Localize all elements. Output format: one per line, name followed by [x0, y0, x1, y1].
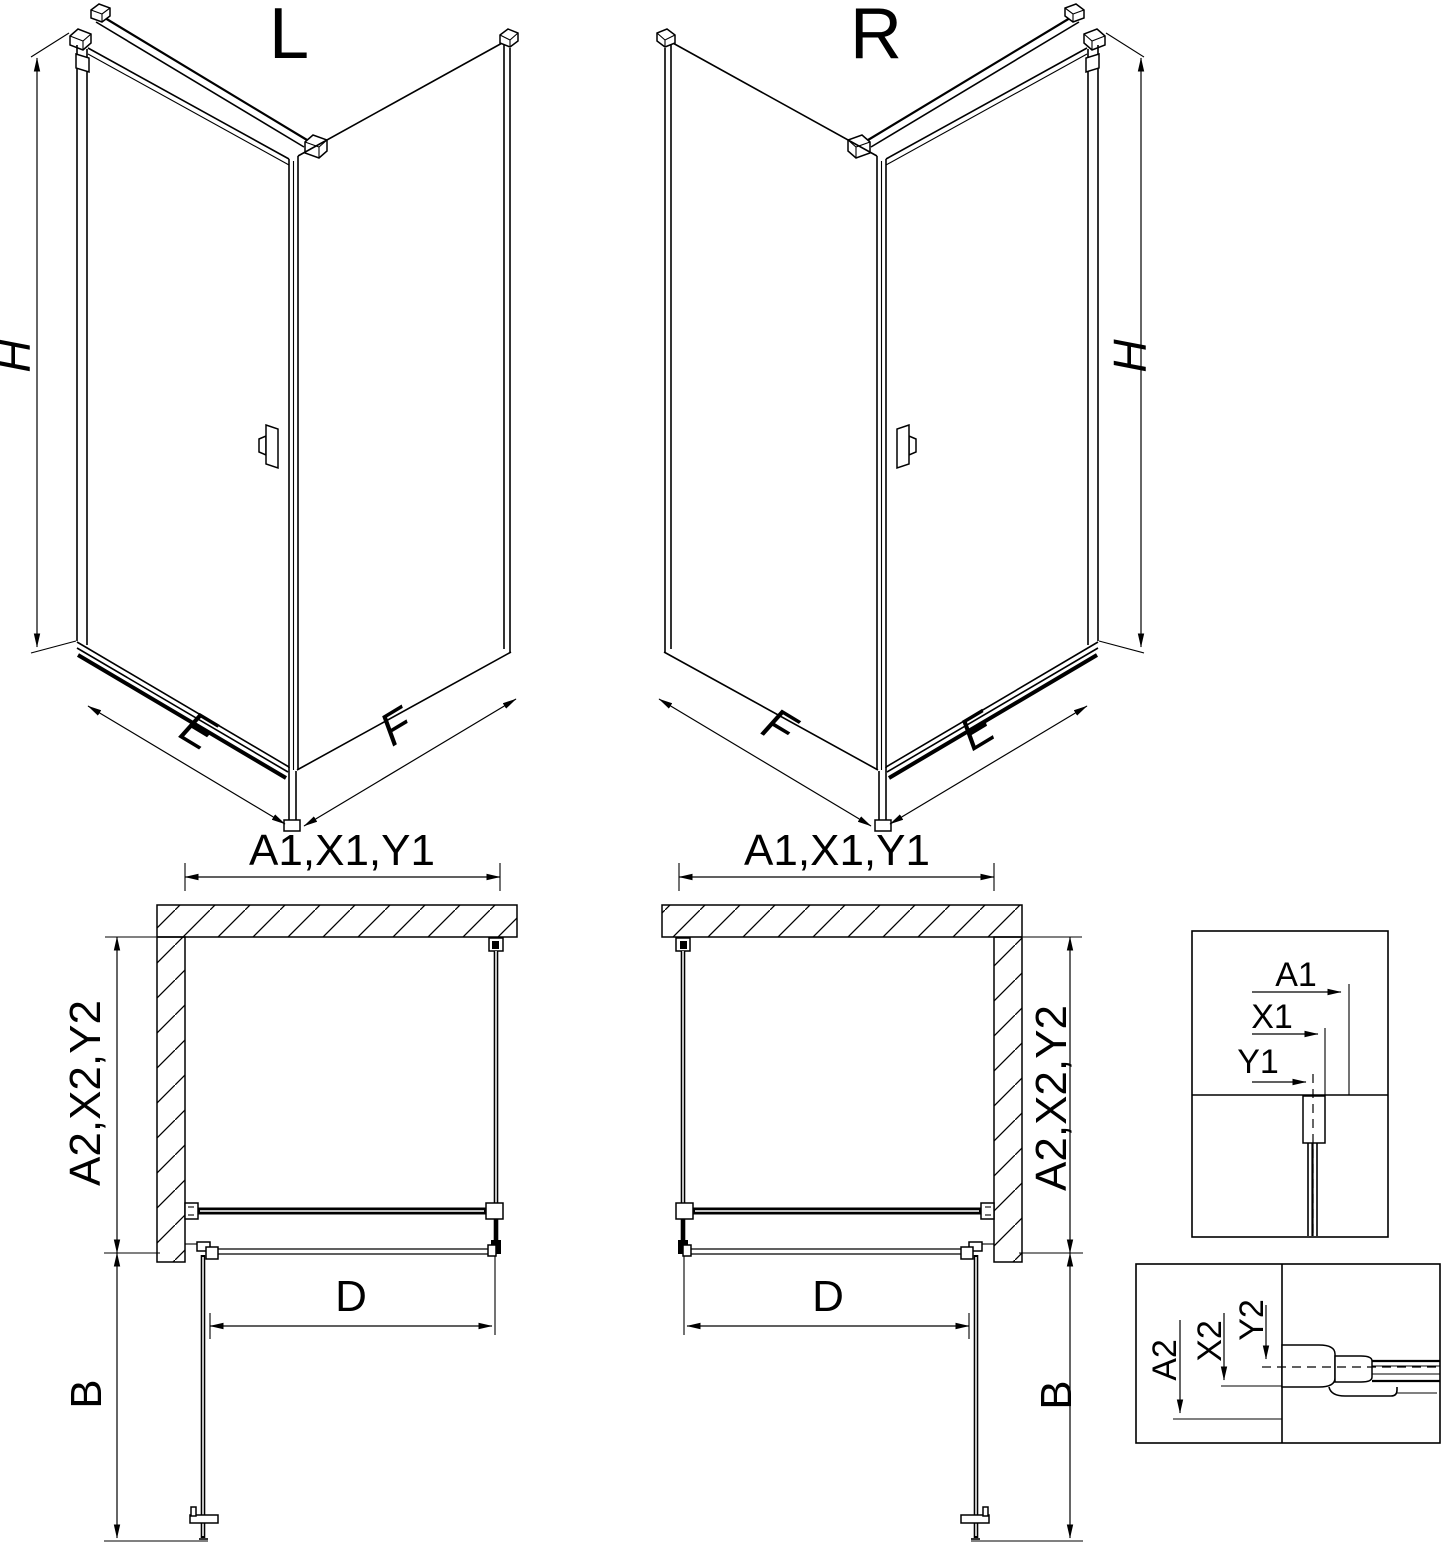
- y2-adjust-label: Y2: [1233, 1299, 1271, 1341]
- opening-dimension-label-left: D: [335, 1272, 367, 1321]
- variant-left-title: L: [269, 0, 309, 74]
- swing-dimension-label-left: B: [62, 1379, 111, 1408]
- wall-profile-side-section: [1282, 1345, 1335, 1387]
- x2-adjust-label: X2: [1191, 1320, 1229, 1362]
- technical-drawing-canvas: L H: [0, 0, 1446, 1546]
- wall-section-top-right-plan: [662, 905, 1022, 937]
- wall-section-side-right-plan: [994, 937, 1022, 1262]
- a2-adjust-label: A2: [1146, 1339, 1184, 1381]
- door-handle-icon: [259, 436, 266, 455]
- variant-right-title: R: [850, 0, 902, 74]
- opening-dimension-label-right: D: [812, 1272, 844, 1321]
- a1-adjust-label: A1: [1275, 956, 1317, 994]
- wall-profile-section: [1303, 1096, 1325, 1143]
- wall-section-side-left-plan: [157, 937, 185, 1262]
- wall-section-top-left-plan: [157, 905, 517, 937]
- h-dimension-label-left: H: [0, 339, 40, 373]
- sheet-background: [0, 0, 1446, 1546]
- x1-adjust-label: X1: [1251, 998, 1293, 1036]
- plan-right-side-dimension-label: A2,X2,Y2: [1027, 1005, 1076, 1191]
- plan-left-side-dimension-label: A2,X2,Y2: [61, 1000, 110, 1186]
- shower-enclosure-drawing: L H: [0, 0, 1446, 1546]
- plan-left-top-dimension-label: A1,X1,Y1: [249, 826, 435, 875]
- h-dimension-label-right: H: [1104, 339, 1156, 373]
- swing-dimension-label-right: B: [1032, 1380, 1081, 1409]
- door-handle-icon: [909, 436, 916, 455]
- y1-adjust-label: Y1: [1237, 1043, 1279, 1081]
- plan-right-top-dimension-label: A1,X1,Y1: [744, 826, 930, 875]
